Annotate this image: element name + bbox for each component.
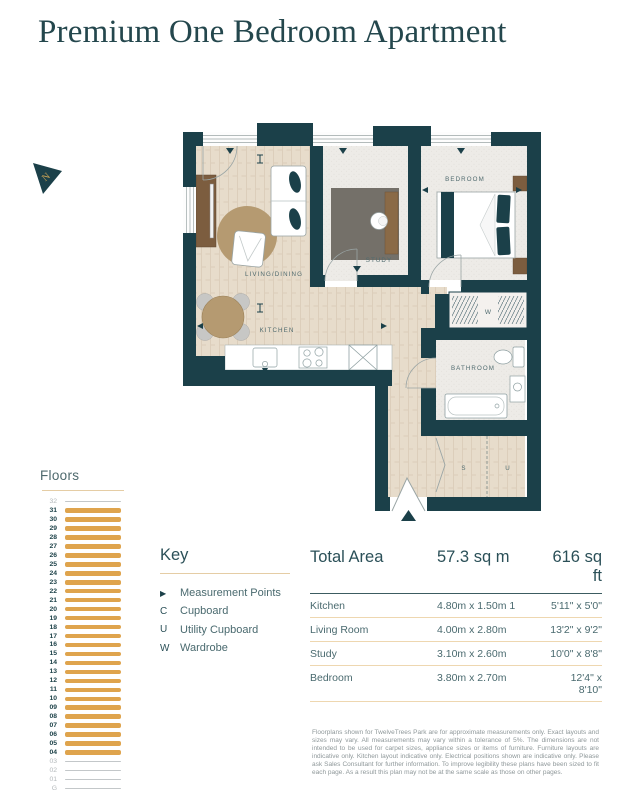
area-table: Total Area 57.3 sq m 616 sq ft Kitchen4.…: [310, 548, 602, 702]
floor-bar-active: [65, 714, 121, 719]
living-dining-label: LIVING/DINING: [245, 271, 303, 278]
floor-row-04[interactable]: 04: [40, 748, 135, 757]
area-row-kitchen: Kitchen4.80m x 1.50m 15'11" x 5'0": [310, 594, 602, 618]
floor-row-05[interactable]: 05: [40, 739, 135, 748]
floor-number: 29: [40, 525, 57, 532]
room-metric: 4.80m x 1.50m 1: [437, 600, 547, 612]
floor-row-23[interactable]: 23: [40, 578, 135, 587]
floor-number: 20: [40, 606, 57, 613]
hob-icon: [299, 347, 327, 368]
key-panel: Key ▶Measurement PointsCCupboardUUtility…: [160, 546, 292, 657]
disclaimer-text: Floorplans shown for TwelveTrees Park ar…: [312, 729, 599, 777]
key-item: ▶Measurement Points: [160, 584, 292, 602]
floor-bar-active: [65, 517, 121, 522]
floor-number: 08: [40, 713, 57, 720]
floor-row-22[interactable]: 22: [40, 587, 135, 596]
north-arrow-icon: N: [26, 154, 70, 202]
room-name: Living Room: [310, 624, 437, 636]
floor-row-30[interactable]: 30: [40, 515, 135, 524]
floor-number: 05: [40, 740, 57, 747]
floor-row-19[interactable]: 19: [40, 614, 135, 623]
floor-number: 26: [40, 552, 57, 559]
key-heading: Key: [160, 546, 292, 565]
floor-bar-active: [65, 697, 121, 702]
floor-row-06[interactable]: 06: [40, 730, 135, 739]
room-name: Bedroom: [310, 672, 437, 696]
floor-number: 16: [40, 641, 57, 648]
key-item-label: Utility Cupboard: [180, 624, 258, 636]
floor-row-13[interactable]: 13: [40, 667, 135, 676]
floor-row-14[interactable]: 14: [40, 658, 135, 667]
floor-row-11[interactable]: 11: [40, 685, 135, 694]
floor-bar-active: [65, 670, 121, 675]
floor-bar-inactive: [65, 761, 121, 762]
floor-number: 23: [40, 579, 57, 586]
floor-number: 03: [40, 758, 57, 765]
room-name: Kitchen: [310, 600, 437, 612]
floor-bar-inactive: [65, 779, 121, 780]
floor-bar-active: [65, 679, 121, 684]
floor-bar-active: [65, 723, 121, 728]
floor-number: 04: [40, 749, 57, 756]
floor-bar-active: [65, 535, 121, 540]
floor-row-01: 01: [40, 775, 135, 784]
floors-list: 3231302928272625242322212019181716151413…: [40, 497, 135, 793]
floor-row-02: 02: [40, 766, 135, 775]
study-label: STUDY: [366, 257, 392, 264]
room-imperial: 10'0" x 8'8": [547, 648, 602, 660]
floorplan-page: Premium One Bedroom Apartment N: [0, 0, 628, 800]
floor-number: 02: [40, 767, 57, 774]
floor-number: 11: [40, 686, 57, 693]
floor-bar-active: [65, 634, 121, 639]
floor-bar-active: [65, 571, 121, 576]
floor-number: 25: [40, 561, 57, 568]
key-item-label: Cupboard: [180, 605, 228, 617]
toilet-icon: [513, 347, 524, 367]
floor-number: 01: [40, 776, 57, 783]
floor-number: 30: [40, 516, 57, 523]
total-area-imperial: 616 sq ft: [547, 548, 602, 586]
page-title: Premium One Bedroom Apartment: [38, 14, 598, 51]
floor-bar-active: [65, 705, 121, 710]
floor-bar-active: [65, 598, 121, 603]
floor-row-21[interactable]: 21: [40, 596, 135, 605]
floor-row-31[interactable]: 31: [40, 506, 135, 515]
room-name: Study: [310, 648, 437, 660]
floor-number: 07: [40, 722, 57, 729]
floor-bar-inactive: [65, 770, 121, 771]
floor-bar-active: [65, 661, 121, 666]
floor-bar-active: [65, 616, 121, 621]
basin-icon: [510, 376, 525, 402]
wardrobe-label: W: [485, 309, 492, 316]
floor-row-10[interactable]: 10: [40, 694, 135, 703]
floor-row-18[interactable]: 18: [40, 623, 135, 632]
floor-bar-active: [65, 553, 121, 558]
storage-label: S: [461, 465, 466, 472]
area-row-study: Study3.10m x 2.60m10'0" x 8'8": [310, 642, 602, 666]
room-metric: 3.80m x 2.70m: [437, 672, 547, 696]
floor-bar-active: [65, 643, 121, 648]
floor-bar-active: [65, 526, 121, 531]
room-metric: 3.10m x 2.60m: [437, 648, 547, 660]
utility-label: U: [505, 465, 511, 472]
sofa-icon: [271, 166, 306, 236]
sink-icon: [253, 348, 277, 367]
key-item: WWardrobe: [160, 639, 292, 657]
dining-table-icon: [197, 294, 250, 341]
armchair-icon: [231, 230, 265, 267]
key-item: UUtility Cupboard: [160, 621, 292, 639]
floor-row-26[interactable]: 26: [40, 551, 135, 560]
floor-number: 06: [40, 731, 57, 738]
floor-bar-active: [65, 589, 121, 594]
key-rule: [160, 573, 290, 574]
floor-bar-inactive: [65, 501, 121, 502]
study-furniture: [331, 188, 399, 260]
floor-bar-active: [65, 625, 121, 630]
floor-row-29[interactable]: 29: [40, 524, 135, 533]
key-item: CCupboard: [160, 602, 292, 620]
area-table-header: Total Area 57.3 sq m 616 sq ft: [310, 548, 602, 594]
floor-bar-inactive: [65, 788, 121, 789]
appliance-icon: [349, 345, 377, 370]
floor-bar-active: [65, 652, 121, 657]
floor-bar-active: [65, 750, 121, 755]
key-item-label: Wardrobe: [180, 642, 228, 654]
floor-number: 13: [40, 668, 57, 675]
floor-row-25[interactable]: 25: [40, 560, 135, 569]
bedroom-label: BEDROOM: [445, 176, 485, 183]
floor-number: 17: [40, 633, 57, 640]
floor-bar-active: [65, 544, 121, 549]
floor-number: 24: [40, 570, 57, 577]
key-letter: U: [160, 624, 180, 635]
floor-number: 14: [40, 659, 57, 666]
key-item-label: Measurement Points: [180, 587, 281, 599]
room-imperial: 13'2" x 9'2": [547, 624, 602, 636]
floor-row-28[interactable]: 28: [40, 533, 135, 542]
floor-bar-active: [65, 580, 121, 585]
floor-number: 27: [40, 543, 57, 550]
room-imperial: 12'4" x 8'10": [547, 672, 602, 696]
floor-row-32: 32: [40, 497, 135, 506]
floor-number: 09: [40, 704, 57, 711]
measurement-point-icon: ▶: [160, 589, 180, 598]
floors-rule: [42, 490, 124, 491]
area-row-living-room: Living Room4.00m x 2.80m13'2" x 9'2": [310, 618, 602, 642]
floor-number: G: [40, 785, 57, 792]
kitchen-label: KITCHEN: [260, 327, 295, 334]
floor-bar-active: [65, 607, 121, 612]
floor-row-07[interactable]: 07: [40, 721, 135, 730]
floor-row-27[interactable]: 27: [40, 542, 135, 551]
floor-row-16[interactable]: 16: [40, 641, 135, 650]
key-letter: W: [160, 643, 180, 654]
floor-number: 22: [40, 588, 57, 595]
total-area-metric: 57.3 sq m: [437, 548, 547, 567]
floor-bar-active: [65, 732, 121, 737]
floor-row-12[interactable]: 12: [40, 676, 135, 685]
kitchen-counter: [225, 345, 392, 374]
area-row-bedroom: Bedroom3.80m x 2.70m12'4" x 8'10": [310, 666, 602, 702]
floor-row-24[interactable]: 24: [40, 569, 135, 578]
floor-row-20[interactable]: 20: [40, 605, 135, 614]
floor-number: 31: [40, 507, 57, 514]
total-area-label: Total Area: [310, 548, 437, 567]
key-list: ▶Measurement PointsCCupboardUUtility Cup…: [160, 584, 292, 657]
floor-row-08[interactable]: 08: [40, 712, 135, 721]
floor-row-G: G: [40, 784, 135, 793]
floor-number: 19: [40, 615, 57, 622]
floors-heading: Floors: [40, 468, 135, 483]
key-letter: C: [160, 606, 180, 617]
room-imperial: 5'11" x 5'0": [547, 600, 602, 612]
room-metric: 4.00m x 2.80m: [437, 624, 547, 636]
floor-number: 10: [40, 695, 57, 702]
floor-bar-active: [65, 562, 121, 567]
floor-row-03: 03: [40, 757, 135, 766]
floor-bar-active: [65, 741, 121, 746]
floor-bar-active: [65, 508, 121, 513]
wardrobe: W: [449, 292, 527, 328]
floor-number: 18: [40, 624, 57, 631]
floor-plan: W: [183, 118, 541, 522]
floor-number: 21: [40, 597, 57, 604]
area-table-rows: Kitchen4.80m x 1.50m 15'11" x 5'0"Living…: [310, 594, 602, 702]
floor-number: 15: [40, 650, 57, 657]
floor-number: 28: [40, 534, 57, 541]
floor-number: 32: [40, 498, 57, 505]
floor-number: 12: [40, 677, 57, 684]
floors-panel: Floors 323130292827262524232221201918171…: [40, 468, 135, 793]
floor-row-15[interactable]: 15: [40, 649, 135, 658]
floor-row-09[interactable]: 09: [40, 703, 135, 712]
floor-bar-active: [65, 688, 121, 693]
bath-icon: [445, 394, 507, 418]
bathroom-label: BATHROOM: [451, 365, 495, 372]
floor-row-17[interactable]: 17: [40, 632, 135, 641]
